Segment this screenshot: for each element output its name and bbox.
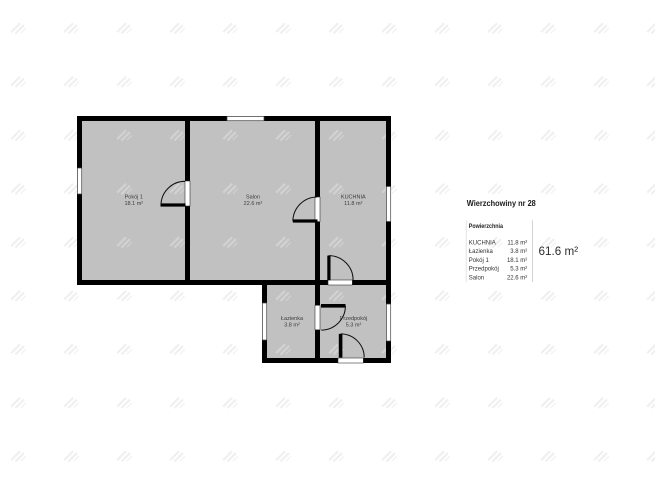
svg-text:KUCHNIA: KUCHNIA <box>341 194 366 200</box>
svg-text:Przedpokój: Przedpokój <box>340 316 368 322</box>
svg-text:3.8 m²: 3.8 m² <box>284 322 300 328</box>
svg-text:61.6 m²: 61.6 m² <box>539 244 579 258</box>
svg-text:5.3 m²: 5.3 m² <box>510 267 527 273</box>
svg-text:22.6 m²: 22.6 m² <box>244 201 263 207</box>
svg-text:11.8 m²: 11.8 m² <box>344 201 362 207</box>
svg-text:Pokój 1: Pokój 1 <box>469 258 490 264</box>
svg-text:Pokój 1: Pokój 1 <box>125 194 143 200</box>
svg-text:3.8 m²: 3.8 m² <box>510 249 527 255</box>
svg-text:11.8 m²: 11.8 m² <box>507 240 527 246</box>
svg-text:Salon: Salon <box>246 194 260 200</box>
svg-text:KUCHNIA: KUCHNIA <box>469 240 496 246</box>
svg-text:Łazienka: Łazienka <box>469 249 494 255</box>
svg-text:Łazienka: Łazienka <box>281 316 304 322</box>
svg-text:Przedpokój: Przedpokój <box>469 267 499 273</box>
svg-text:22.6 m²: 22.6 m² <box>507 275 527 281</box>
svg-text:5.3 m²: 5.3 m² <box>346 322 362 328</box>
svg-text:18.1 m²: 18.1 m² <box>507 258 527 264</box>
svg-text:Salon: Salon <box>469 275 484 281</box>
svg-text:18.1 m²: 18.1 m² <box>124 201 143 207</box>
svg-text:Powierzchnia: Powierzchnia <box>469 223 503 230</box>
svg-text:Wierzchowiny nr 28: Wierzchowiny nr 28 <box>467 198 536 208</box>
